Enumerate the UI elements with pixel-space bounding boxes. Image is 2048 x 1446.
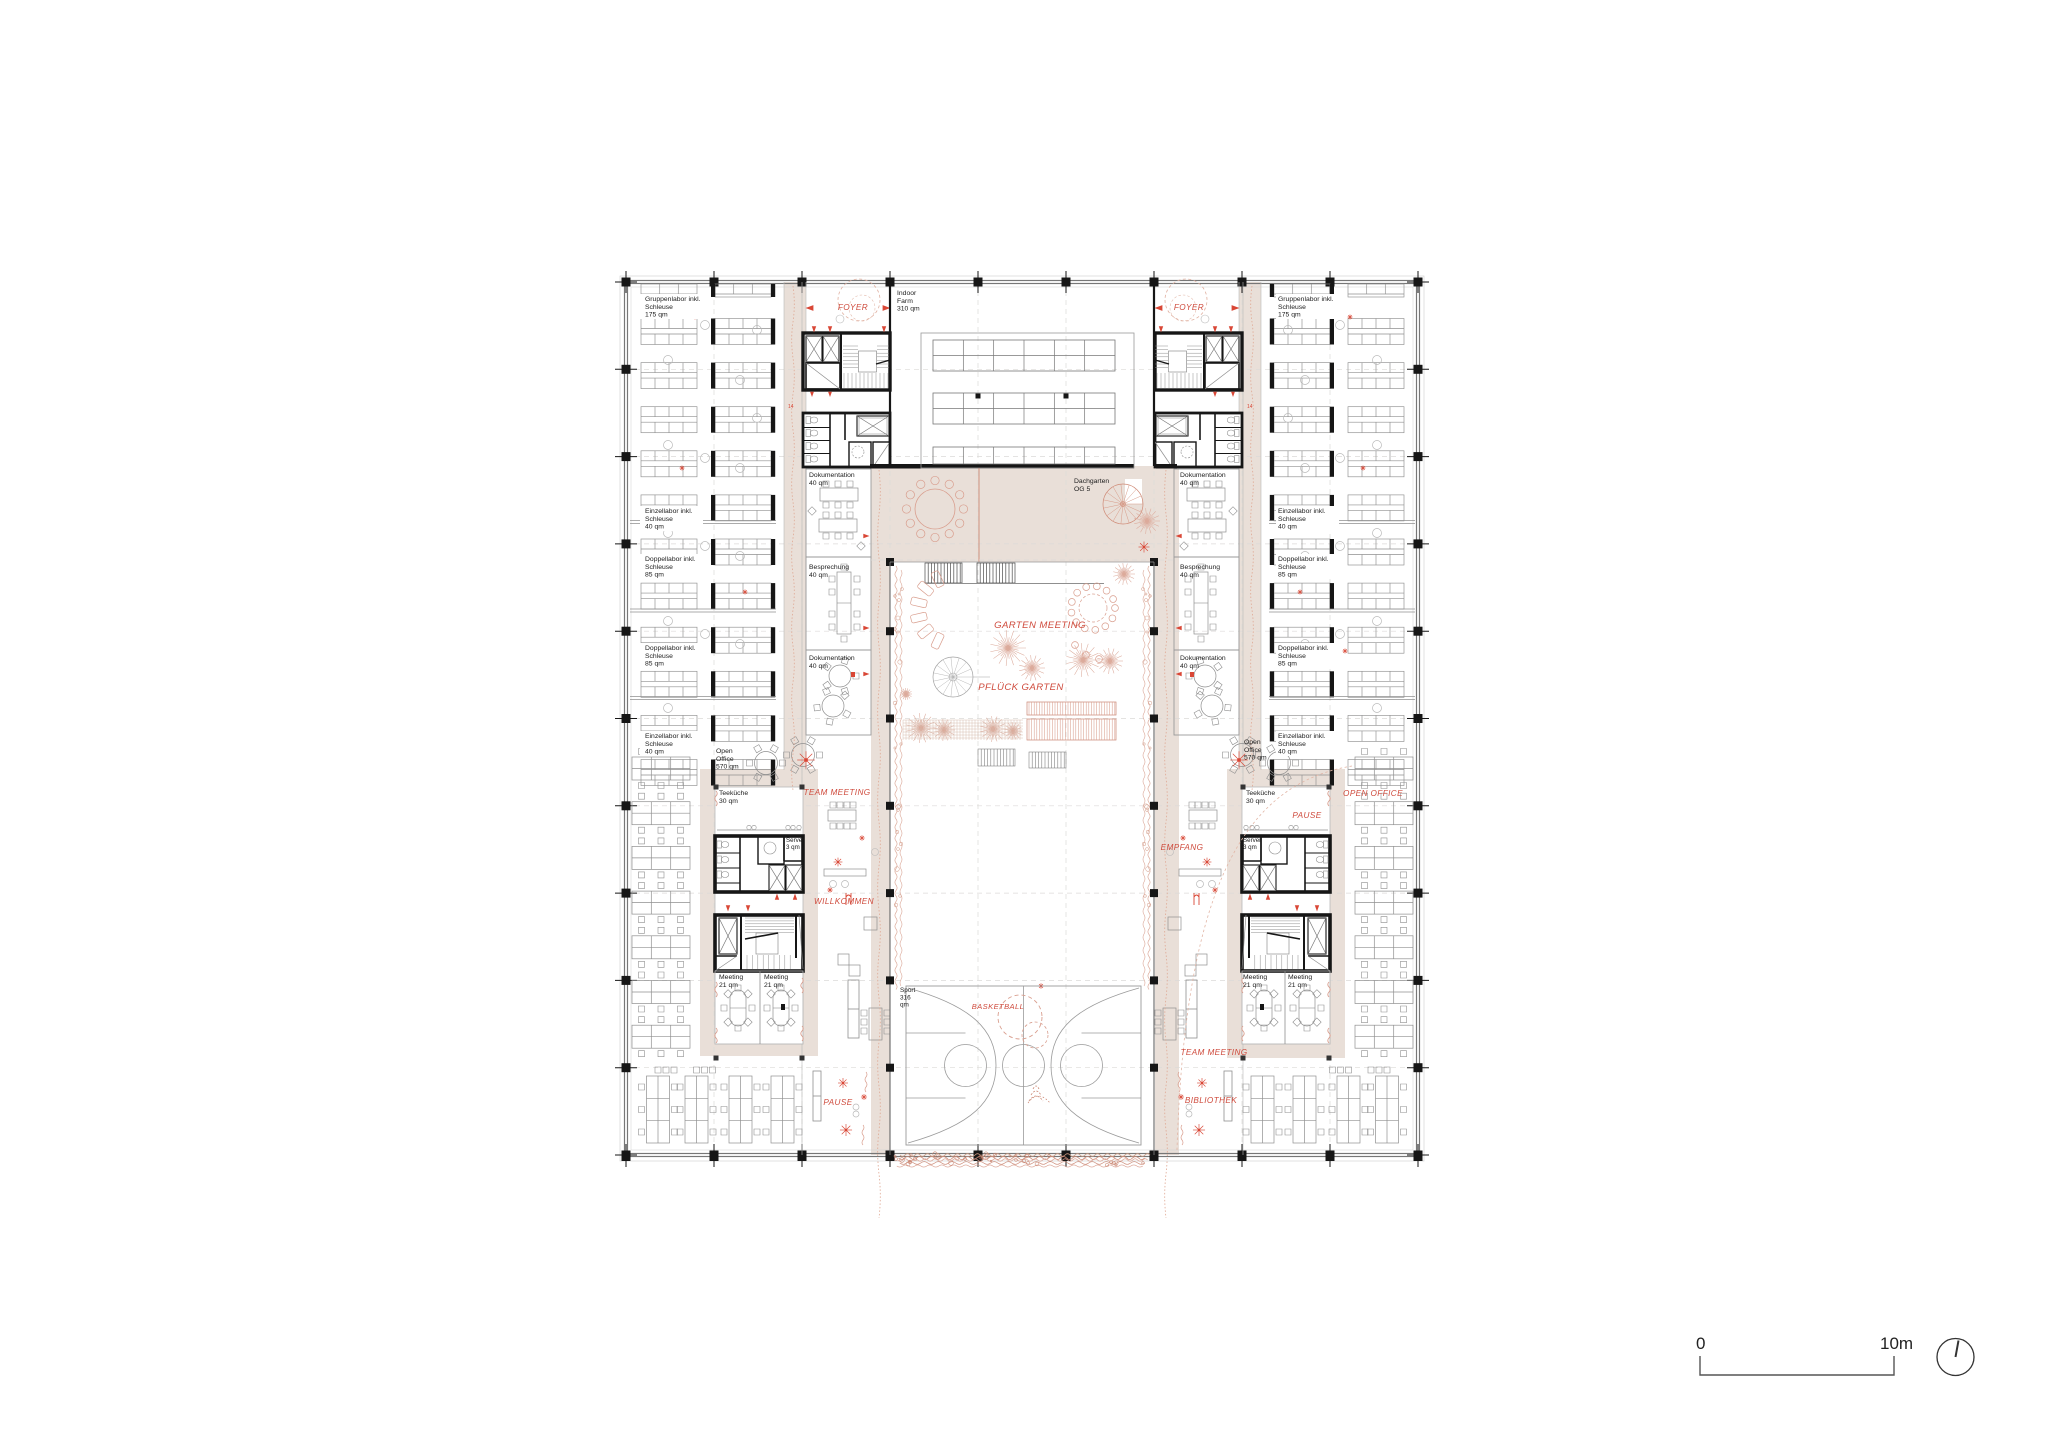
svg-text:GARTEN MEETING: GARTEN MEETING — [994, 620, 1086, 631]
svg-text:10m: 10m — [1880, 1334, 1913, 1353]
svg-text:PAUSE: PAUSE — [1292, 811, 1321, 820]
svg-text:OPEN OFFICE: OPEN OFFICE — [1343, 789, 1403, 798]
svg-text:BASKETBALL: BASKETBALL — [972, 1002, 1025, 1011]
svg-text:BIBLIOTHEK: BIBLIOTHEK — [1185, 1096, 1237, 1105]
svg-text:TEAM MEETING: TEAM MEETING — [1180, 1048, 1247, 1057]
svg-text:TEAM MEETING: TEAM MEETING — [803, 788, 870, 797]
svg-text:14: 14 — [788, 404, 794, 410]
svg-text:0: 0 — [1696, 1334, 1705, 1353]
svg-text:14: 14 — [1247, 404, 1253, 410]
svg-text:PAUSE: PAUSE — [823, 1098, 852, 1107]
svg-text:EMPFANG: EMPFANG — [1161, 843, 1204, 852]
svg-text:PFLÜCK GARTEN: PFLÜCK GARTEN — [978, 682, 1064, 693]
svg-text:WILLKOMMEN: WILLKOMMEN — [814, 897, 874, 906]
svg-text:FOYER: FOYER — [1174, 303, 1204, 312]
svg-text:FOYER: FOYER — [838, 303, 868, 312]
